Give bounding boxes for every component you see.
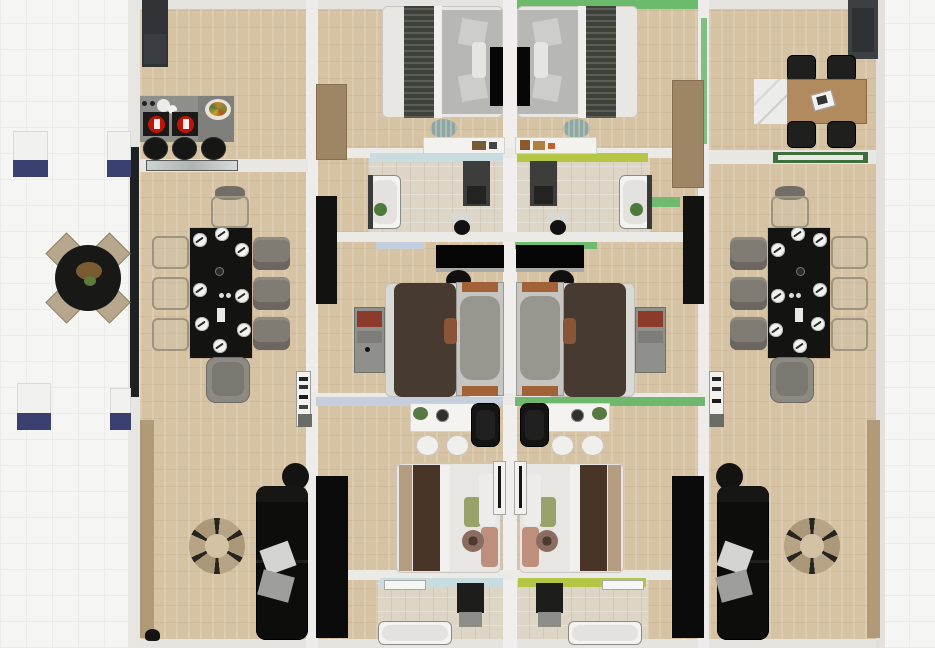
bed-flower-decor bbox=[536, 530, 558, 552]
bed-pillow-salmon bbox=[522, 527, 539, 567]
round-rug-left-center bbox=[205, 534, 229, 558]
closet-top-left[interactable] bbox=[316, 84, 347, 160]
ac-panel-vent bbox=[498, 466, 501, 508]
wardrobe-bottom-right[interactable] bbox=[672, 476, 704, 638]
wardrobe-bottom-left[interactable] bbox=[316, 476, 348, 638]
dining-chair-wire[interactable] bbox=[152, 236, 189, 269]
bathtub-mid-right-edge bbox=[647, 175, 652, 229]
dining-chair-gray[interactable] bbox=[730, 317, 767, 350]
storage-box[interactable] bbox=[298, 414, 312, 427]
bed-top-right-blanket bbox=[586, 6, 616, 118]
wardrobe-hall-right[interactable] bbox=[683, 196, 704, 304]
bed-foot-brown bbox=[413, 465, 440, 571]
dresser-drawer bbox=[638, 331, 663, 343]
patio-right-floor bbox=[883, 0, 935, 648]
book bbox=[712, 377, 721, 381]
dinner-plate bbox=[237, 323, 251, 337]
bed-top-left-blanket bbox=[404, 6, 434, 118]
dinner-plate bbox=[235, 243, 249, 257]
lounger-mat-end bbox=[107, 160, 131, 177]
wall-tan-left bbox=[140, 420, 154, 638]
sofa-right-arm bbox=[717, 486, 769, 502]
tv-mid-left[interactable] bbox=[436, 245, 504, 268]
sink-mid-left bbox=[467, 186, 486, 204]
sink-mid-right bbox=[534, 186, 553, 204]
bed-pillow-long bbox=[534, 42, 548, 78]
dinner-plate bbox=[195, 317, 209, 331]
fridge-left-door bbox=[144, 34, 166, 64]
pepper-shaker bbox=[226, 293, 231, 298]
accent-midroom-left bbox=[376, 242, 424, 249]
rack-clothes bbox=[520, 296, 560, 380]
kitchen-chair-black[interactable] bbox=[787, 55, 816, 82]
dinner-plate bbox=[813, 283, 827, 297]
rack-cap bbox=[522, 386, 558, 396]
lounger-mat-end bbox=[17, 413, 51, 430]
rack-cap bbox=[522, 282, 558, 292]
food bbox=[209, 102, 227, 116]
kitchen-chair-black[interactable] bbox=[827, 121, 856, 148]
vanity-bottom-right-base bbox=[538, 612, 561, 627]
bathtub-bottom-right-inner bbox=[572, 625, 638, 641]
dinner-plate bbox=[213, 339, 227, 353]
wall-bottom-bath-mid bbox=[316, 570, 705, 580]
dinner-plate bbox=[791, 227, 805, 241]
dresser-decor bbox=[472, 141, 486, 150]
bathtub-mid-left-edge bbox=[368, 175, 373, 229]
dining-chair-foot-cushion bbox=[776, 362, 808, 396]
dresser-drawer bbox=[357, 331, 382, 343]
bath-plant bbox=[374, 203, 387, 216]
kitchen-table-marble bbox=[754, 79, 787, 124]
rack-cap bbox=[462, 282, 498, 292]
sofa-left-arm bbox=[256, 486, 308, 502]
dining-chair-wire[interactable] bbox=[152, 277, 189, 310]
book bbox=[712, 399, 721, 403]
dinner-plate bbox=[193, 233, 207, 247]
dinner-plate bbox=[193, 283, 207, 297]
wall-bath-living-mid bbox=[316, 232, 705, 242]
dresser-decor bbox=[548, 143, 555, 149]
table-candle bbox=[796, 267, 805, 276]
dining-chair-wire[interactable] bbox=[831, 277, 868, 310]
bed-top-right-fold bbox=[578, 6, 586, 118]
table-candle bbox=[215, 267, 224, 276]
round-rug-right-center bbox=[800, 534, 824, 558]
desk-plate bbox=[571, 409, 584, 422]
wardrobe-hall-left[interactable] bbox=[316, 196, 337, 304]
bar-stool[interactable] bbox=[143, 137, 168, 160]
lounger-mat-end bbox=[13, 160, 48, 177]
dining-chair-gray[interactable] bbox=[253, 237, 290, 270]
wall-center bbox=[503, 0, 517, 648]
closet-top-right[interactable] bbox=[672, 80, 704, 188]
dresser-decor bbox=[520, 140, 530, 150]
rack-chair[interactable] bbox=[563, 318, 576, 344]
toilet[interactable] bbox=[550, 220, 566, 235]
book bbox=[299, 385, 308, 389]
book bbox=[299, 377, 308, 381]
bar-stool[interactable] bbox=[201, 137, 226, 160]
dinner-plate bbox=[215, 227, 229, 241]
tv-stand-mid-left bbox=[436, 268, 504, 272]
dining-chair-foot-cushion bbox=[212, 362, 244, 396]
salt-shaker bbox=[789, 293, 794, 298]
menu-card bbox=[217, 308, 225, 322]
dresser-decor bbox=[489, 142, 497, 149]
toilet[interactable] bbox=[454, 220, 470, 235]
floor-plan-canvas bbox=[0, 0, 935, 648]
dining-chair-gray[interactable] bbox=[730, 277, 767, 310]
storage-box[interactable] bbox=[710, 414, 724, 427]
dinner-plate bbox=[235, 289, 249, 303]
book bbox=[299, 405, 308, 409]
rack-cap bbox=[462, 386, 498, 396]
dining-chair-gray[interactable] bbox=[253, 277, 290, 310]
pouf-top-left[interactable] bbox=[430, 119, 457, 138]
dinner-plate bbox=[813, 233, 827, 247]
bed-foot-tan bbox=[608, 465, 621, 571]
dresser-drawer-red bbox=[357, 311, 382, 327]
desk-chair-white[interactable] bbox=[446, 435, 469, 456]
fridge-right-door bbox=[852, 8, 874, 52]
bathtub-mid-left-inner bbox=[372, 180, 397, 224]
armchair-cushion bbox=[525, 410, 544, 440]
wall-tan-right bbox=[867, 420, 880, 638]
bar-stool[interactable] bbox=[172, 137, 197, 160]
dining-chair-gray[interactable] bbox=[253, 317, 290, 350]
vanity-bottom-left-base bbox=[459, 612, 482, 627]
desk-plate bbox=[436, 409, 449, 422]
dresser-drawer-red bbox=[638, 311, 663, 327]
book bbox=[299, 395, 308, 399]
wall-mirror-shelf[interactable] bbox=[146, 160, 238, 171]
counter-knob bbox=[150, 101, 155, 106]
bed-flower-decor bbox=[462, 530, 484, 552]
patio-left-floor bbox=[0, 0, 140, 648]
rack-chair[interactable] bbox=[444, 318, 457, 344]
bed-foot-brown bbox=[580, 465, 607, 571]
dinner-plate bbox=[769, 323, 783, 337]
menu-card bbox=[795, 308, 803, 322]
shelf-kitchen-right-glass bbox=[778, 155, 863, 160]
tv-mid-right[interactable] bbox=[516, 245, 584, 268]
kitchen-chair-black[interactable] bbox=[827, 55, 856, 82]
bath-plant bbox=[630, 203, 643, 216]
kitchen-chair-black[interactable] bbox=[787, 121, 816, 148]
bed-pillow-green bbox=[539, 497, 556, 527]
cat[interactable] bbox=[145, 629, 160, 641]
salt-shaker bbox=[219, 293, 224, 298]
desk-chair-white[interactable] bbox=[416, 435, 439, 456]
dining-chair-wire[interactable] bbox=[831, 318, 868, 351]
dining-chair-wire[interactable] bbox=[831, 236, 868, 269]
bed-top-left-fold bbox=[434, 6, 442, 118]
book bbox=[712, 387, 721, 391]
pepper-shaker bbox=[796, 293, 801, 298]
wall-patio-black bbox=[130, 147, 139, 397]
patio-salad bbox=[84, 276, 96, 286]
bed-foot-tan bbox=[399, 465, 412, 571]
dining-chair-head-frame[interactable] bbox=[211, 196, 249, 228]
desk-chair-white[interactable] bbox=[581, 435, 604, 456]
pouf-top-right[interactable] bbox=[563, 119, 590, 138]
dinner-plate bbox=[811, 317, 825, 331]
desk-plant bbox=[592, 407, 607, 420]
vanity-bottom-right[interactable] bbox=[536, 583, 563, 613]
bed-fold bbox=[440, 465, 450, 571]
burner-grate bbox=[154, 119, 160, 129]
bathtub-mid-right-inner bbox=[623, 180, 648, 224]
dining-chair-wire[interactable] bbox=[152, 318, 189, 351]
vanity-bottom-left[interactable] bbox=[457, 583, 484, 613]
dinner-plate bbox=[771, 243, 785, 257]
dinner-plate bbox=[771, 289, 785, 303]
shelf-bath-bottom-left bbox=[384, 580, 426, 590]
burner-grate bbox=[183, 119, 189, 129]
dresser-decor bbox=[533, 141, 545, 150]
ac-panel-vent bbox=[519, 466, 522, 508]
dining-chair-gray[interactable] bbox=[730, 237, 767, 270]
dinner-plate bbox=[793, 339, 807, 353]
counter-knob bbox=[142, 101, 147, 106]
bed-fold bbox=[570, 465, 580, 571]
desk-chair-white[interactable] bbox=[551, 435, 574, 456]
rack-clothes bbox=[460, 296, 500, 380]
armchair-cushion bbox=[476, 410, 495, 440]
shelf-bath-bottom-right bbox=[602, 580, 644, 590]
bed-pillow-salmon bbox=[481, 527, 498, 567]
desk-plant bbox=[413, 407, 428, 420]
dresser-knob bbox=[365, 347, 370, 352]
bed-pillow-long bbox=[472, 42, 486, 78]
tv-wall-top-right[interactable] bbox=[517, 47, 530, 106]
bathtub-bottom-left-inner bbox=[382, 625, 448, 641]
tv-stand-mid-right bbox=[516, 268, 584, 272]
dining-chair-head-frame[interactable] bbox=[771, 196, 809, 228]
lounger-mat-end bbox=[110, 413, 131, 430]
tv-wall-top-left[interactable] bbox=[490, 47, 503, 106]
